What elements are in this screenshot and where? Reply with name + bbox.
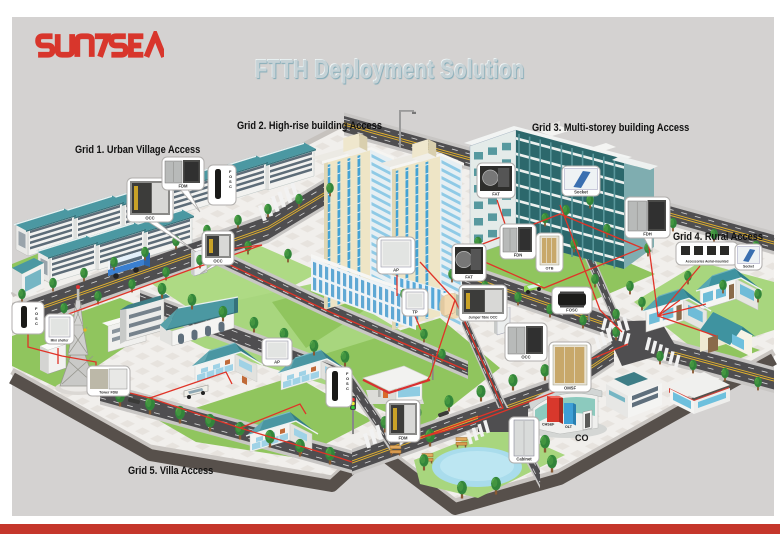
svg-text:OTB: OTB [545,267,553,271]
svg-text:Socket: Socket [574,190,588,195]
svg-text:FDM: FDM [398,436,408,441]
svg-text:CHS&F: CHS&F [542,423,555,427]
svg-text:AP: AP [274,360,280,365]
svg-text:C: C [346,386,349,391]
svg-text:OCC: OCC [145,216,154,221]
svg-text:OCC: OCC [521,355,530,360]
svg-text:OCC: OCC [213,259,222,264]
svg-text:C: C [35,321,38,326]
svg-text:Mini shelter: Mini shelter [51,339,69,343]
svg-text:Jumper fibre OCC: Jumper fibre OCC [468,316,498,320]
svg-text:Accessories Aerial-mounted: Accessories Aerial-mounted [686,260,729,264]
svg-text:Tower FDB: Tower FDB [99,391,118,395]
svg-text:CO: CO [575,433,589,443]
svg-text:TP: TP [412,310,418,315]
svg-text:OMSF: OMSF [564,386,577,391]
svg-text:AP: AP [393,268,399,273]
svg-text:Socket: Socket [743,265,755,269]
svg-text:OLT: OLT [565,425,573,429]
svg-text:FOSC: FOSC [566,308,578,313]
svg-text:FDN: FDN [514,253,523,258]
svg-text:FAT: FAT [492,192,500,197]
svg-text:C: C [229,184,232,189]
svg-text:FDM: FDM [178,184,188,189]
svg-text:FDH: FDH [643,232,652,237]
svg-text:FAT: FAT [465,275,473,280]
svg-text:Cabinet: Cabinet [516,457,532,462]
